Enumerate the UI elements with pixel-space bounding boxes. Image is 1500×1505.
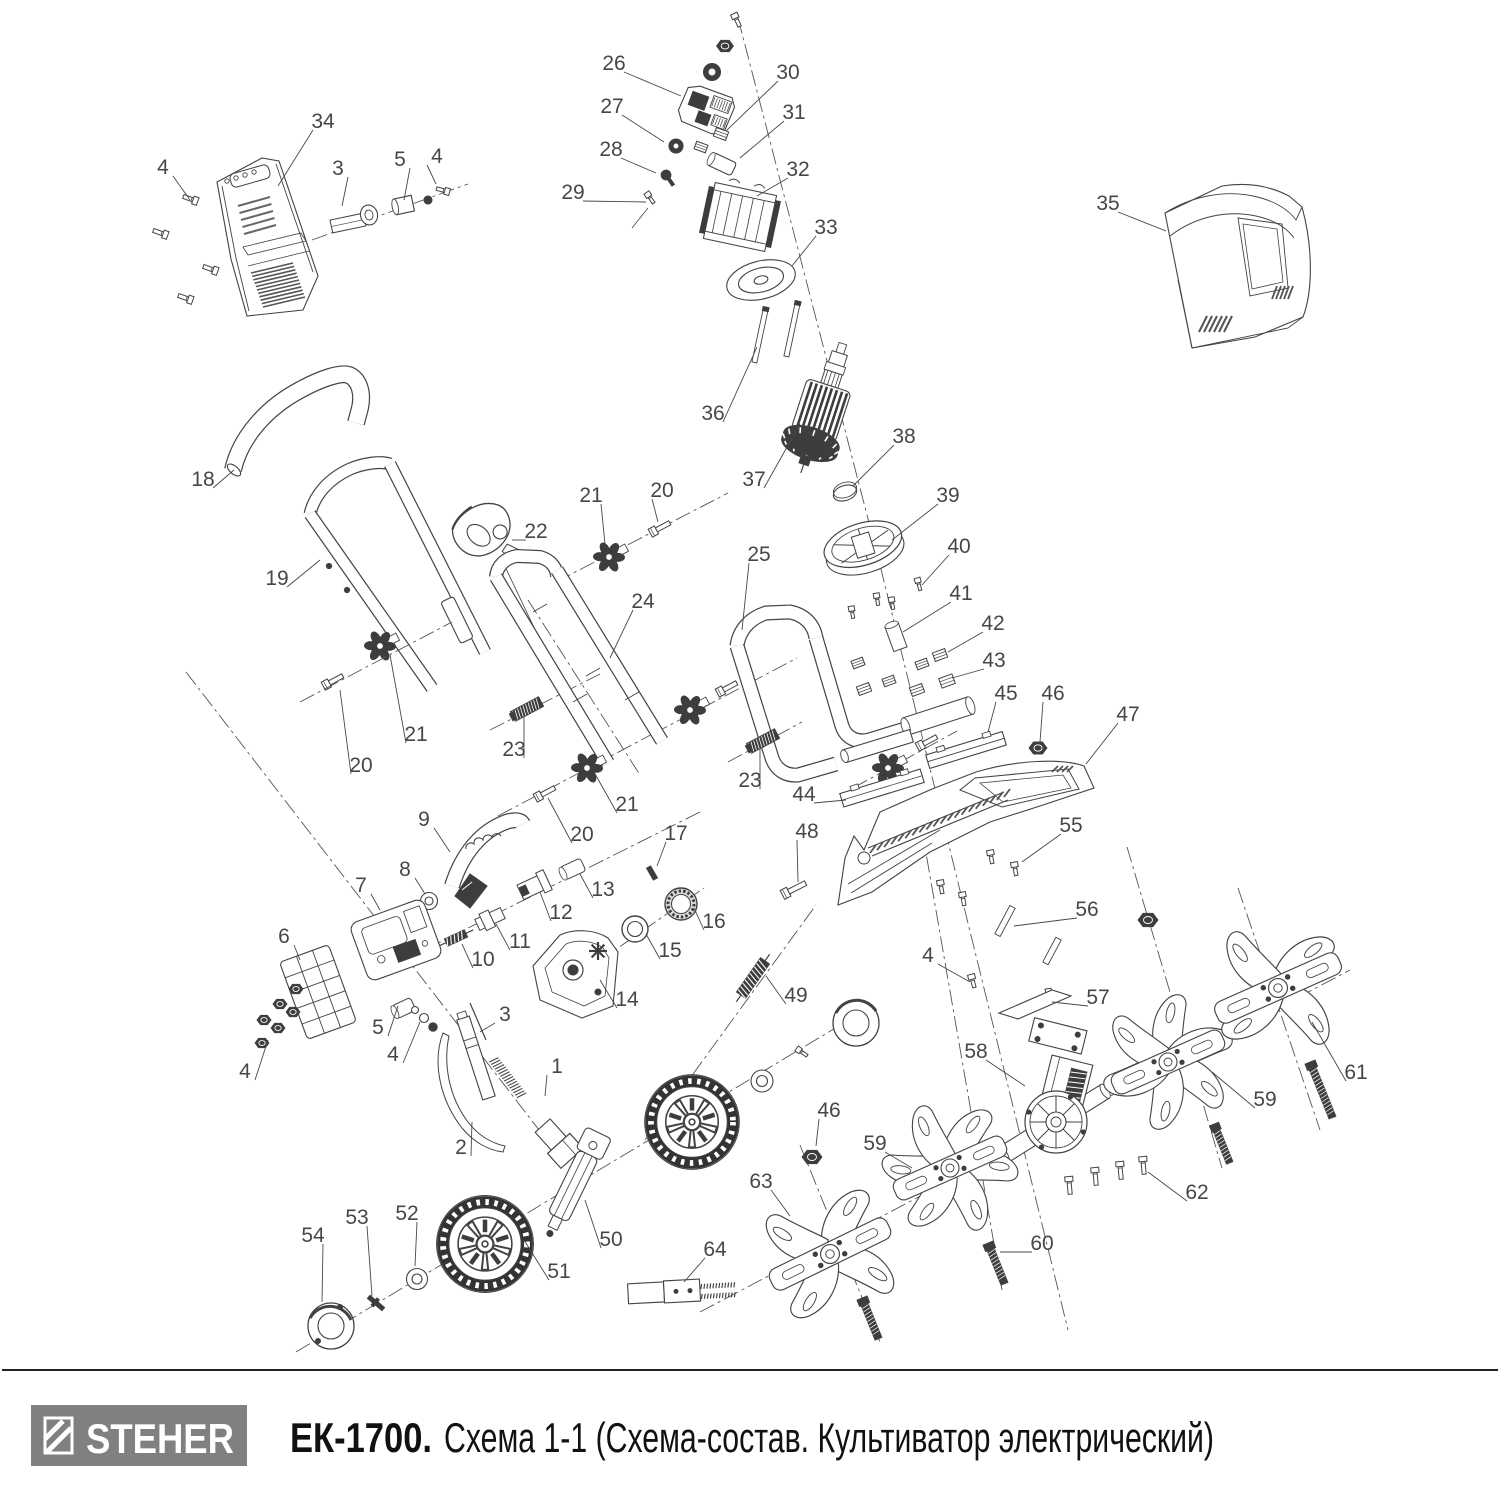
svg-text:45: 45 [994,682,1017,705]
svg-text:57: 57 [1086,986,1109,1009]
svg-text:31: 31 [782,101,805,124]
svg-text:42: 42 [981,612,1004,635]
svg-text:46: 46 [1041,682,1064,705]
svg-text:26: 26 [602,52,625,75]
svg-text:13: 13 [591,878,614,901]
svg-text:60: 60 [1030,1232,1053,1255]
svg-text:62: 62 [1185,1181,1208,1204]
svg-text:19: 19 [265,567,288,590]
svg-text:10: 10 [471,948,494,971]
svg-text:3: 3 [499,1003,511,1026]
svg-text:47: 47 [1116,703,1139,726]
svg-text:55: 55 [1059,814,1082,837]
svg-text:23: 23 [738,769,761,792]
svg-text:20: 20 [570,823,593,846]
svg-text:15: 15 [658,939,681,962]
svg-text:49: 49 [784,984,807,1007]
svg-text:5: 5 [372,1016,384,1039]
svg-text:20: 20 [349,754,372,777]
svg-text:4: 4 [431,145,443,168]
svg-text:25: 25 [747,543,770,566]
svg-text:59: 59 [863,1132,886,1155]
svg-text:4: 4 [387,1043,399,1066]
svg-text:9: 9 [418,808,430,831]
svg-text:2: 2 [455,1136,467,1159]
svg-text:58: 58 [964,1040,987,1063]
svg-text:51: 51 [547,1260,570,1283]
svg-text:20: 20 [650,479,673,502]
svg-text:53: 53 [345,1206,368,1229]
svg-text:14: 14 [615,988,639,1011]
svg-text:41: 41 [949,582,972,605]
svg-text:30: 30 [776,61,799,84]
svg-text:21: 21 [404,723,427,746]
svg-text:34: 34 [311,110,335,133]
svg-text:21: 21 [579,484,602,507]
svg-text:64: 64 [703,1238,727,1261]
svg-text:11: 11 [509,930,531,953]
svg-text:44: 44 [792,783,816,806]
svg-text:3: 3 [332,157,344,180]
svg-text:48: 48 [795,820,818,843]
svg-text:23: 23 [502,738,525,761]
svg-text:4: 4 [239,1060,251,1083]
svg-text:38: 38 [892,425,915,448]
svg-text:43: 43 [982,649,1005,672]
svg-text:28: 28 [599,138,622,161]
svg-text:59: 59 [1253,1088,1276,1111]
svg-text:52: 52 [395,1202,418,1225]
svg-text:36: 36 [701,402,724,425]
svg-text:16: 16 [702,910,725,933]
svg-text:18: 18 [191,468,214,491]
svg-text:24: 24 [631,590,655,613]
svg-text:46: 46 [817,1099,840,1122]
svg-text:12: 12 [549,901,572,924]
svg-text:39: 39 [936,484,959,507]
svg-text:7: 7 [355,874,367,897]
svg-text:ЕК-1700.Схема 1-1 (Схема-соста: ЕК-1700.Схема 1-1 (Схема-состав. Культив… [290,1414,1214,1461]
svg-text:29: 29 [561,181,584,204]
svg-text:4: 4 [157,156,169,179]
svg-text:61: 61 [1344,1061,1367,1084]
svg-text:33: 33 [814,216,837,239]
svg-text:STEHER: STEHER [86,1415,234,1462]
svg-text:40: 40 [947,535,970,558]
svg-text:27: 27 [600,95,623,118]
svg-text:56: 56 [1075,898,1098,921]
svg-text:32: 32 [786,158,809,181]
svg-text:1: 1 [551,1055,563,1078]
svg-text:35: 35 [1096,192,1119,215]
svg-text:17: 17 [664,822,687,845]
svg-text:4: 4 [922,944,934,967]
svg-text:37: 37 [742,468,765,491]
svg-text:22: 22 [524,520,547,543]
svg-text:54: 54 [301,1224,325,1247]
svg-text:5: 5 [394,148,406,171]
svg-text:50: 50 [599,1228,622,1251]
svg-text:8: 8 [399,858,411,881]
svg-text:63: 63 [749,1170,772,1193]
svg-text:21: 21 [615,793,638,816]
svg-text:6: 6 [278,925,290,948]
